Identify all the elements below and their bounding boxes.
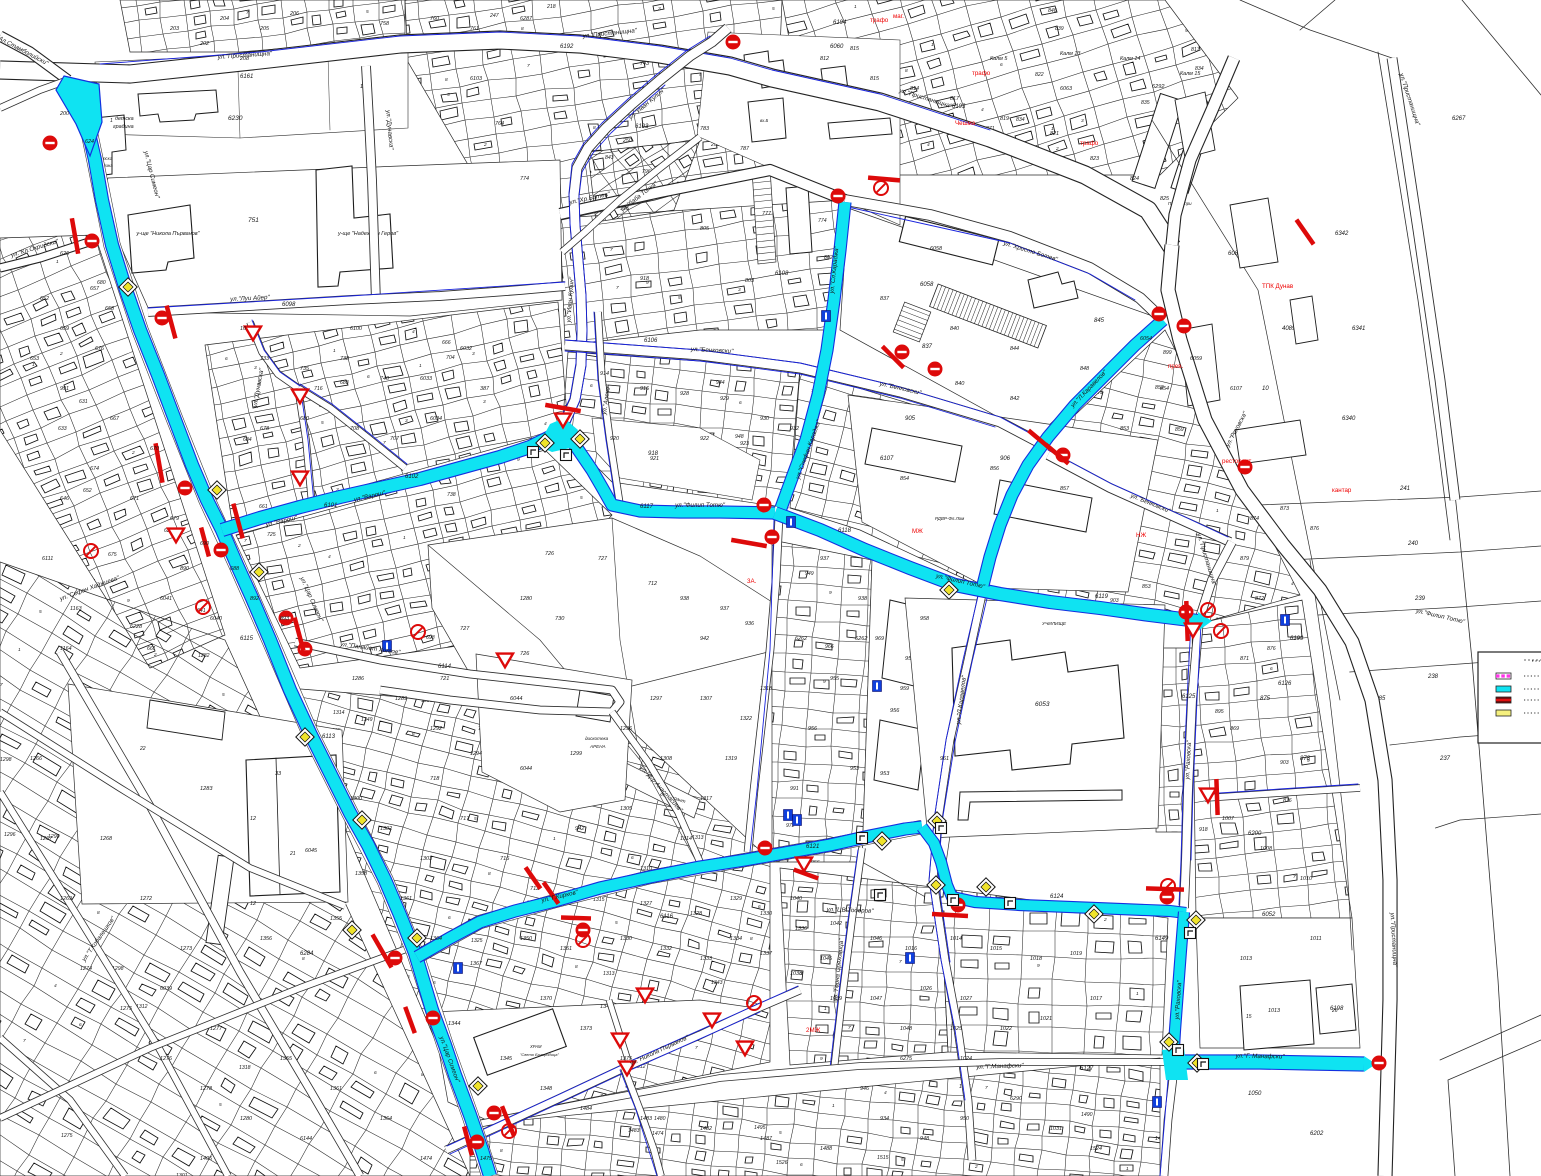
- svg-text:1488: 1488: [820, 1146, 832, 1152]
- svg-text:920: 920: [610, 436, 619, 442]
- svg-text:1022: 1022: [1000, 1026, 1012, 1032]
- svg-text:1345: 1345: [500, 1056, 513, 1062]
- svg-text:2: 2: [483, 142, 487, 148]
- svg-text:854: 854: [900, 476, 909, 482]
- svg-text:трафо: трафо: [972, 70, 991, 77]
- svg-text:733: 733: [260, 356, 269, 362]
- svg-text:8: 8: [488, 871, 491, 877]
- svg-text:690: 690: [200, 541, 209, 547]
- svg-text:1047: 1047: [870, 996, 883, 1002]
- svg-text:6098: 6098: [282, 302, 296, 308]
- svg-text:815: 815: [850, 46, 860, 52]
- svg-text:1487: 1487: [760, 1136, 773, 1142]
- svg-text:5: 5: [615, 920, 618, 926]
- svg-text:922: 922: [700, 436, 709, 442]
- svg-text:1007: 1007: [1222, 816, 1235, 822]
- svg-text:1296: 1296: [4, 832, 16, 838]
- svg-text:6: 6: [1270, 666, 1273, 672]
- svg-text:6199: 6199: [1290, 636, 1304, 642]
- svg-text:6284: 6284: [300, 951, 314, 957]
- svg-text:10: 10: [240, 326, 246, 332]
- svg-text:1275: 1275: [61, 1133, 73, 1139]
- svg-text:761: 761: [470, 26, 479, 32]
- svg-text:914: 914: [600, 371, 609, 377]
- svg-text:6117: 6117: [640, 504, 654, 510]
- svg-text:6: 6: [374, 1070, 377, 1076]
- svg-text:5: 5: [219, 1102, 222, 1108]
- svg-text:7: 7: [246, 10, 249, 16]
- svg-text:1039: 1039: [830, 996, 842, 1002]
- svg-text:803: 803: [745, 278, 754, 284]
- svg-text:918: 918: [1199, 827, 1208, 833]
- svg-text:845: 845: [1094, 318, 1105, 324]
- svg-text:ХРАМ: ХРАМ: [529, 1044, 542, 1049]
- svg-text:1314: 1314: [333, 710, 345, 716]
- svg-text:6192: 6192: [560, 44, 574, 50]
- svg-text:7: 7: [616, 285, 619, 291]
- svg-text:1298: 1298: [0, 757, 12, 763]
- svg-text:953: 953: [850, 766, 859, 772]
- svg-text:трафо: трафо: [1080, 140, 1099, 147]
- svg-text:1268: 1268: [100, 836, 112, 842]
- svg-text:6108: 6108: [775, 271, 789, 277]
- svg-text:795: 795: [620, 206, 630, 212]
- svg-text:1308: 1308: [660, 756, 672, 762]
- svg-text:6193: 6193: [952, 104, 966, 110]
- svg-text:6: 6: [448, 915, 451, 921]
- svg-text:1297: 1297: [650, 696, 663, 702]
- svg-text:1325: 1325: [471, 938, 483, 944]
- svg-text:6275: 6275: [900, 1056, 913, 1062]
- svg-text:955: 955: [830, 676, 840, 682]
- svg-text:966: 966: [825, 644, 834, 650]
- svg-text:6125: 6125: [1182, 694, 1196, 700]
- svg-text:"Свето Богородица": "Свето Богородица": [520, 1052, 560, 1057]
- svg-text:1299: 1299: [570, 751, 582, 757]
- svg-text:1483: 1483: [628, 1128, 640, 1134]
- svg-text:1017: 1017: [1090, 996, 1103, 1002]
- svg-text:1305: 1305: [620, 806, 633, 812]
- svg-text:934: 934: [880, 1116, 889, 1122]
- svg-text:2МЖ: 2МЖ: [806, 1027, 821, 1034]
- svg-text:6267: 6267: [1452, 116, 1466, 122]
- svg-text:6202: 6202: [1310, 1131, 1324, 1137]
- svg-text:840: 840: [950, 326, 959, 332]
- svg-text:218: 218: [546, 4, 556, 10]
- svg-text:6039: 6039: [160, 986, 172, 992]
- svg-text:1269: 1269: [60, 896, 72, 902]
- svg-text:1275: 1275: [120, 1006, 133, 1012]
- svg-text:6: 6: [79, 1022, 82, 1028]
- svg-text:1010: 1010: [1300, 876, 1312, 882]
- svg-text:817: 817: [1191, 47, 1201, 53]
- svg-text:1314: 1314: [680, 836, 692, 842]
- svg-text:5: 5: [447, 92, 450, 98]
- svg-text:684: 684: [243, 437, 252, 443]
- svg-text:4: 4: [981, 107, 984, 113]
- svg-text:774: 774: [520, 176, 529, 182]
- svg-text:10: 10: [1262, 386, 1269, 392]
- svg-text:239: 239: [1414, 596, 1426, 602]
- svg-text:5: 5: [321, 420, 324, 426]
- svg-text:6126: 6126: [1278, 681, 1292, 687]
- svg-text:6161: 6161: [240, 74, 253, 80]
- svg-text:659: 659: [60, 326, 69, 332]
- svg-text:7: 7: [527, 63, 530, 69]
- svg-text:4: 4: [54, 983, 57, 989]
- svg-text:6: 6: [412, 731, 415, 737]
- svg-text:250: 250: [622, 138, 632, 144]
- svg-text:918: 918: [640, 276, 649, 282]
- svg-text:777: 777: [762, 211, 772, 217]
- svg-text:1327: 1327: [640, 901, 653, 907]
- svg-text:1278: 1278: [200, 1086, 212, 1092]
- svg-text:704: 704: [446, 355, 455, 361]
- svg-text:1: 1: [1136, 991, 1139, 997]
- svg-text:трафо: трафо: [870, 17, 889, 24]
- svg-text:1273: 1273: [180, 946, 192, 952]
- svg-text:детска: детска: [115, 116, 134, 122]
- svg-text:878: 878: [1300, 756, 1311, 762]
- svg-text:6118: 6118: [838, 528, 852, 534]
- svg-text:903: 903: [1280, 760, 1289, 766]
- svg-text:624: 624: [85, 139, 94, 145]
- svg-text:5: 5: [779, 1130, 782, 1136]
- svg-text:3: 3: [254, 365, 257, 371]
- svg-text:200: 200: [59, 111, 69, 117]
- svg-text:815: 815: [870, 76, 880, 82]
- svg-text:760: 760: [430, 16, 439, 22]
- svg-text:671: 671: [130, 496, 139, 502]
- svg-text:823: 823: [1090, 156, 1099, 162]
- svg-text:840: 840: [955, 381, 965, 387]
- svg-text:674: 674: [90, 466, 99, 472]
- svg-text:819: 819: [1000, 116, 1009, 122]
- svg-text:854: 854: [1160, 386, 1169, 392]
- svg-text:1364: 1364: [430, 936, 442, 942]
- svg-text:822: 822: [1035, 72, 1044, 78]
- svg-text:875: 875: [1260, 696, 1271, 702]
- svg-text:6107: 6107: [1230, 386, 1243, 392]
- svg-text:5: 5: [474, 816, 477, 822]
- svg-text:8: 8: [445, 77, 448, 83]
- svg-text:33: 33: [275, 771, 282, 777]
- svg-text:1318: 1318: [239, 1065, 251, 1071]
- svg-text:961: 961: [940, 756, 949, 762]
- svg-text:1364: 1364: [380, 1116, 392, 1122]
- svg-text:12: 12: [250, 901, 256, 907]
- svg-text:1019: 1019: [1070, 951, 1082, 957]
- svg-text:716: 716: [500, 856, 510, 862]
- svg-text:1050: 1050: [1248, 1091, 1262, 1097]
- svg-text:937: 937: [720, 606, 730, 612]
- svg-text:6044: 6044: [510, 696, 522, 702]
- svg-text:873: 873: [1280, 506, 1289, 512]
- svg-text:5: 5: [772, 6, 775, 12]
- svg-text:9: 9: [823, 679, 826, 685]
- svg-text:1283: 1283: [200, 786, 213, 792]
- svg-text:738: 738: [447, 492, 456, 498]
- svg-text:698: 698: [426, 635, 435, 641]
- svg-text:6113: 6113: [322, 734, 336, 740]
- svg-text:848: 848: [1080, 366, 1089, 372]
- svg-text:205: 205: [259, 26, 270, 32]
- svg-text:688: 688: [230, 566, 239, 572]
- svg-text:1480: 1480: [654, 1116, 666, 1122]
- svg-text:626: 626: [60, 251, 69, 257]
- svg-text:6: 6: [631, 855, 634, 861]
- svg-text:1474: 1474: [652, 1131, 664, 1137]
- svg-text:872: 872: [1255, 596, 1264, 602]
- svg-text:6052: 6052: [1262, 912, 1276, 918]
- svg-text:5: 5: [39, 609, 42, 615]
- svg-text:959: 959: [900, 686, 909, 692]
- svg-text:203: 203: [169, 26, 179, 32]
- svg-text:652: 652: [83, 488, 92, 494]
- svg-text:1344: 1344: [448, 1021, 460, 1027]
- svg-text:969: 969: [875, 636, 884, 642]
- svg-text:6053: 6053: [1035, 701, 1050, 708]
- svg-text:7: 7: [899, 959, 902, 965]
- svg-text:5: 5: [901, 1157, 904, 1163]
- svg-text:678: 678: [260, 426, 269, 432]
- svg-text:ул."Г. Манафски": ул."Г. Манафски": [1234, 1053, 1285, 1061]
- svg-text:15: 15: [1246, 1014, 1252, 1020]
- svg-text:787: 787: [740, 146, 750, 152]
- svg-text:1040: 1040: [790, 896, 802, 902]
- svg-text:950: 950: [960, 1116, 969, 1122]
- svg-text:7: 7: [0, 682, 3, 688]
- svg-text:Калм 15: Калм 15: [1180, 71, 1201, 77]
- svg-text:892: 892: [250, 596, 259, 602]
- svg-text:721: 721: [440, 676, 449, 682]
- svg-text:1: 1: [1126, 1166, 1129, 1172]
- svg-text:ул."Филип Тотю": ул."Филип Тотю": [674, 502, 726, 509]
- svg-text:1294: 1294: [470, 751, 482, 757]
- svg-text:1310: 1310: [640, 866, 652, 872]
- svg-text:1330: 1330: [620, 936, 632, 942]
- svg-text:у-ще "Никола Първанов": у-ще "Никола Първанов": [135, 231, 200, 237]
- svg-text:202: 202: [199, 41, 209, 47]
- svg-text:869: 869: [1230, 726, 1239, 732]
- svg-text:1370: 1370: [540, 996, 552, 1002]
- svg-text:1277: 1277: [210, 1026, 223, 1032]
- svg-text:6116: 6116: [660, 914, 674, 920]
- svg-text:928: 928: [680, 391, 689, 397]
- svg-text:1: 1: [360, 84, 363, 90]
- svg-text:1267: 1267: [40, 836, 53, 842]
- svg-text:2: 2: [59, 351, 63, 357]
- svg-text:646: 646: [60, 496, 69, 502]
- svg-text:2: 2: [1055, 146, 1059, 152]
- svg-text:6198: 6198: [1330, 1006, 1344, 1012]
- svg-text:876: 876: [1310, 526, 1319, 532]
- svg-text:1495: 1495: [754, 1125, 766, 1131]
- svg-text:1307: 1307: [700, 696, 713, 702]
- svg-text:6063: 6063: [1060, 86, 1072, 92]
- svg-text:6149: 6149: [1155, 936, 1169, 942]
- svg-text:932: 932: [790, 426, 799, 432]
- svg-text:661: 661: [147, 646, 156, 652]
- svg-text:1490: 1490: [1081, 1112, 1093, 1118]
- svg-text:1045: 1045: [820, 956, 833, 962]
- svg-text:6100: 6100: [350, 326, 362, 332]
- svg-text:1014: 1014: [950, 936, 962, 942]
- svg-text:1018: 1018: [1030, 956, 1042, 962]
- svg-text:1027: 1027: [960, 996, 973, 1002]
- svg-text:991: 991: [790, 786, 799, 792]
- svg-text:6292: 6292: [1152, 84, 1165, 90]
- svg-text:1: 1: [824, 1006, 827, 1012]
- svg-text:764: 764: [495, 121, 504, 127]
- svg-text:1484: 1484: [580, 1106, 592, 1112]
- svg-text:5: 5: [580, 495, 583, 501]
- svg-text:905: 905: [905, 416, 916, 422]
- svg-text:7: 7: [848, 1025, 851, 1031]
- svg-text:6127: 6127: [1080, 1066, 1094, 1072]
- svg-text:937: 937: [820, 556, 830, 562]
- svg-text:1008: 1008: [1260, 846, 1272, 852]
- svg-text:942: 942: [575, 826, 585, 832]
- svg-text:938: 938: [680, 596, 689, 602]
- svg-text:прев.: прев.: [1168, 363, 1184, 370]
- svg-text:9: 9: [1037, 963, 1040, 969]
- svg-text:666: 666: [442, 340, 451, 346]
- svg-text:6041: 6041: [160, 596, 172, 602]
- svg-text:958: 958: [920, 616, 929, 622]
- svg-text:УЧИЛИЩЕ: УЧИЛИЩЕ: [1042, 621, 1067, 627]
- svg-text:893: 893: [280, 616, 289, 622]
- svg-text:6342: 6342: [1335, 231, 1349, 237]
- svg-text:938: 938: [858, 596, 867, 602]
- svg-text:1318: 1318: [760, 686, 772, 692]
- svg-text:631: 631: [79, 399, 88, 405]
- svg-text:3: 3: [658, 6, 661, 12]
- svg-text:856: 856: [990, 466, 999, 472]
- svg-text:853: 853: [1120, 426, 1129, 432]
- svg-text:879: 879: [1240, 556, 1249, 562]
- svg-text:12: 12: [250, 816, 256, 822]
- svg-text:5: 5: [366, 9, 369, 15]
- svg-text:916: 916: [640, 386, 649, 392]
- svg-text:204: 204: [219, 16, 229, 22]
- svg-text:6340: 6340: [1342, 416, 1356, 422]
- svg-text:929: 929: [720, 396, 729, 402]
- svg-text:1266: 1266: [30, 756, 42, 762]
- svg-text:1475: 1475: [480, 1156, 493, 1162]
- svg-text:1046: 1046: [870, 936, 882, 942]
- svg-text:6228: 6228: [130, 624, 142, 630]
- svg-text:6103: 6103: [470, 76, 482, 82]
- svg-text:8: 8: [500, 1148, 503, 1154]
- svg-text:АРЕНА: АРЕНА: [589, 744, 606, 749]
- svg-text:944: 944: [716, 380, 725, 386]
- svg-text:1313: 1313: [603, 971, 615, 977]
- svg-text:735: 735: [300, 366, 310, 372]
- svg-text:4: 4: [884, 1090, 887, 1096]
- svg-text:946: 946: [860, 1086, 869, 1092]
- svg-text:4: 4: [412, 329, 415, 335]
- svg-text:657: 657: [90, 286, 100, 292]
- svg-text:6114: 6114: [438, 664, 452, 670]
- svg-text:1303: 1303: [420, 856, 432, 862]
- svg-text:1: 1: [1216, 508, 1219, 514]
- svg-text:6262: 6262: [855, 636, 868, 642]
- svg-text:6194: 6194: [833, 20, 847, 26]
- svg-text:1013: 1013: [1240, 956, 1252, 962]
- svg-text:8: 8: [905, 68, 908, 74]
- svg-text:738: 738: [340, 356, 349, 362]
- svg-text:6045: 6045: [305, 848, 318, 854]
- svg-text:6058: 6058: [920, 282, 934, 288]
- svg-text:21: 21: [289, 851, 296, 857]
- svg-text:208: 208: [239, 56, 249, 62]
- svg-text:1526: 1526: [776, 1160, 788, 1166]
- svg-text:4: 4: [927, 142, 930, 148]
- svg-text:6: 6: [590, 383, 593, 389]
- svg-text:1356: 1356: [260, 936, 272, 942]
- svg-text:743: 743: [640, 61, 649, 67]
- svg-text:876: 876: [1267, 646, 1276, 652]
- svg-text:837: 837: [880, 296, 890, 302]
- svg-text:1: 1: [832, 1103, 835, 1109]
- svg-text:1336: 1336: [795, 926, 807, 932]
- svg-text:Чешма: Чешма: [955, 120, 976, 127]
- svg-text:1348: 1348: [540, 1086, 552, 1092]
- svg-text:675: 675: [108, 552, 117, 558]
- svg-text:8: 8: [521, 26, 524, 32]
- svg-text:874: 874: [1250, 516, 1259, 522]
- svg-text:1013: 1013: [1268, 1008, 1280, 1014]
- svg-text:ТПК Дунав: ТПК Дунав: [1262, 283, 1294, 290]
- svg-text:7: 7: [1293, 874, 1296, 880]
- svg-text:ресторант: ресторант: [1222, 458, 1251, 465]
- svg-text:942: 942: [700, 636, 709, 642]
- svg-text:817: 817: [950, 96, 960, 102]
- svg-text:кантар: кантар: [1332, 487, 1352, 494]
- svg-text:1: 1: [553, 836, 556, 842]
- svg-text:1332: 1332: [660, 946, 672, 952]
- svg-text:1375: 1375: [620, 1056, 633, 1062]
- svg-text:1300: 1300: [350, 796, 362, 802]
- svg-text:5: 5: [222, 692, 225, 698]
- svg-text:6290: 6290: [1010, 1096, 1022, 1102]
- svg-text:805: 805: [700, 226, 710, 232]
- svg-text:837: 837: [922, 344, 933, 350]
- svg-text:1164: 1164: [60, 646, 72, 652]
- svg-text:1367: 1367: [470, 961, 483, 967]
- svg-text:1524: 1524: [1090, 1146, 1102, 1152]
- svg-text:921: 921: [650, 456, 659, 462]
- svg-text:6115: 6115: [240, 636, 254, 642]
- svg-text:1361: 1361: [400, 896, 412, 902]
- svg-text:6102: 6102: [405, 474, 419, 480]
- svg-text:7: 7: [244, 538, 247, 544]
- svg-text:240: 240: [1407, 541, 1419, 547]
- svg-text:3: 3: [483, 399, 486, 405]
- svg-text:949: 949: [805, 571, 814, 577]
- svg-text:1042: 1042: [830, 921, 842, 927]
- svg-text:812: 812: [820, 56, 829, 62]
- svg-text:716: 716: [314, 386, 323, 392]
- svg-text:890: 890: [180, 566, 189, 572]
- svg-text:3А.: 3А.: [747, 578, 757, 585]
- svg-text:6040: 6040: [210, 616, 222, 622]
- svg-text:3: 3: [738, 287, 741, 293]
- svg-text:1280: 1280: [520, 596, 532, 602]
- svg-text:1: 1: [403, 535, 406, 541]
- svg-text:6059: 6059: [1190, 356, 1202, 362]
